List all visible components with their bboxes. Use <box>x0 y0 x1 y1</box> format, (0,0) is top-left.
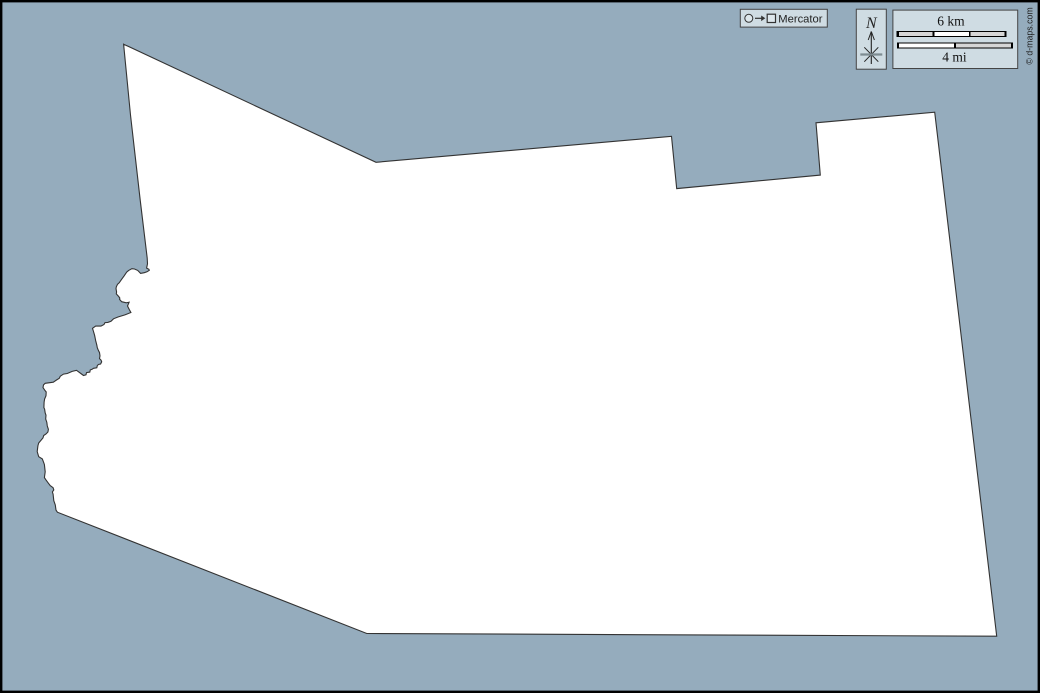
svg-text:6 km: 6 km <box>937 14 965 29</box>
svg-text:N: N <box>865 15 878 32</box>
svg-text:© d-maps.com: © d-maps.com <box>1024 7 1034 64</box>
svg-text:4 mi: 4 mi <box>942 50 967 65</box>
svg-text:Mercator: Mercator <box>778 14 822 26</box>
